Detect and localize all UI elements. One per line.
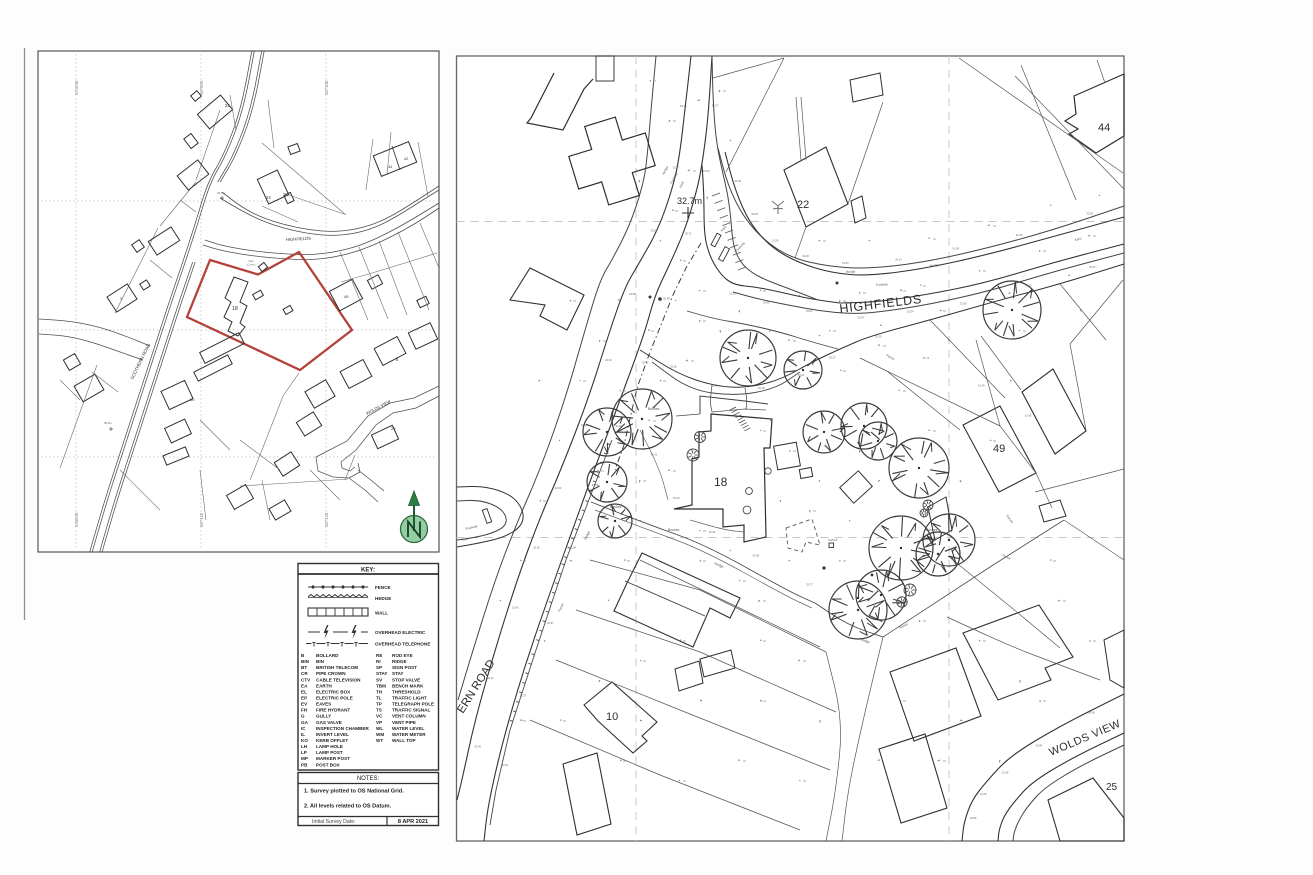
svg-text:32.69: 32.69 <box>703 169 710 173</box>
svg-text:MP: MP <box>301 756 308 761</box>
svg-text:STAY: STAY <box>376 671 388 676</box>
svg-text:FH: FH <box>301 708 308 713</box>
svg-text:32.7m: 32.7m <box>677 196 702 206</box>
svg-text:49: 49 <box>344 294 349 299</box>
svg-text:LAMP POST: LAMP POST <box>316 750 343 755</box>
svg-text:32.83: 32.83 <box>650 229 657 233</box>
svg-text:22: 22 <box>266 195 271 200</box>
svg-text:BIN: BIN <box>316 659 325 664</box>
svg-text:8 APR 2021: 8 APR 2021 <box>398 819 428 825</box>
svg-text:32.35: 32.35 <box>1016 233 1023 237</box>
svg-text:2. All levels related to OS Da: 2. All levels related to OS Datum. <box>304 804 392 810</box>
svg-text:KO: KO <box>301 738 308 743</box>
svg-text:32.14: 32.14 <box>895 257 902 261</box>
svg-text:CR: CR <box>301 671 308 676</box>
svg-text:32.65: 32.65 <box>1087 212 1094 216</box>
svg-text:EP: EP <box>301 696 307 701</box>
svg-text:31.28: 31.28 <box>980 792 987 796</box>
svg-text:T: T <box>340 642 344 649</box>
svg-text:WL: WL <box>376 726 383 731</box>
svg-text:35.4m: 35.4m <box>104 421 112 425</box>
svg-text:KEY:: KEY: <box>361 568 375 574</box>
svg-text:SLP/LP: SLP/LP <box>828 538 838 542</box>
svg-text:33.58: 33.58 <box>629 292 636 296</box>
svg-text:31.99: 31.99 <box>615 424 622 428</box>
svg-text:TP: TP <box>376 702 382 707</box>
svg-text:33.49: 33.49 <box>673 496 680 500</box>
svg-text:RI: RI <box>376 659 381 664</box>
svg-text:EA: EA <box>301 683 308 688</box>
svg-text:LH: LH <box>301 744 308 749</box>
svg-text:FENCE: FENCE <box>375 585 391 590</box>
svg-text:EARTH: EARTH <box>316 683 333 688</box>
svg-text:30.89: 30.89 <box>1036 743 1043 747</box>
svg-text:32.42: 32.42 <box>651 453 658 457</box>
svg-text:T: T <box>326 642 330 649</box>
svg-text:520930: 520930 <box>74 512 79 527</box>
svg-text:32.60: 32.60 <box>555 486 562 490</box>
svg-text:TELEGRAPH POLE: TELEGRAPH POLE <box>392 702 434 707</box>
svg-text:VP: VP <box>376 720 382 725</box>
svg-text:32.42: 32.42 <box>711 383 718 387</box>
svg-text:32.04: 32.04 <box>570 546 577 550</box>
svg-text:32.94: 32.94 <box>605 358 612 362</box>
svg-text:GA: GA <box>301 720 309 725</box>
svg-text:VENT PIPE: VENT PIPE <box>392 720 416 725</box>
svg-text:GULLY: GULLY <box>316 714 331 719</box>
svg-text:33.38: 33.38 <box>752 554 759 558</box>
svg-text:30.58: 30.58 <box>1088 711 1095 715</box>
svg-text:507120: 507120 <box>324 512 329 527</box>
svg-text:G: G <box>301 714 305 719</box>
svg-text:31.72: 31.72 <box>923 356 930 360</box>
svg-text:32.92: 32.92 <box>642 360 649 364</box>
svg-text:33.18: 33.18 <box>758 386 765 390</box>
svg-text:22: 22 <box>797 199 809 211</box>
svg-text:LAMP HOLE: LAMP HOLE <box>316 744 343 749</box>
svg-text:WATER LEVEL: WATER LEVEL <box>392 726 425 731</box>
svg-text:31.43: 31.43 <box>978 384 985 388</box>
svg-text:ROD EYE: ROD EYE <box>392 653 413 658</box>
svg-text:32.37: 32.37 <box>520 694 527 698</box>
svg-text:FIRE HYDRANT: FIRE HYDRANT <box>316 708 350 713</box>
svg-text:RIDGE: RIDGE <box>392 659 407 664</box>
svg-text:31.50: 31.50 <box>772 238 779 242</box>
svg-text:32.07: 32.07 <box>1089 265 1096 269</box>
svg-text:32.22: 32.22 <box>729 292 736 296</box>
svg-text:32.30: 32.30 <box>802 254 809 258</box>
svg-text:32.77: 32.77 <box>806 583 813 587</box>
svg-text:WALL: WALL <box>375 611 388 616</box>
svg-text:32.32: 32.32 <box>709 530 716 534</box>
svg-text:CTV: CTV <box>301 677 311 682</box>
svg-text:32.40: 32.40 <box>474 745 481 749</box>
svg-text:VENT COLUMN: VENT COLUMN <box>392 714 426 719</box>
svg-text:EL: EL <box>301 689 307 694</box>
svg-text:30.86: 30.86 <box>970 816 977 820</box>
svg-text:31.51: 31.51 <box>842 261 849 265</box>
svg-text:Initial Survey Date:: Initial Survey Date: <box>312 819 356 825</box>
svg-text:GAS VALVE: GAS VALVE <box>316 720 342 725</box>
svg-text:10: 10 <box>190 397 195 402</box>
svg-text:33.18: 33.18 <box>670 364 677 368</box>
svg-text:31.99: 31.99 <box>952 247 959 251</box>
svg-text:WALL TOP: WALL TOP <box>392 738 416 743</box>
svg-text:1. Survey plotted to OS Nation: 1. Survey plotted to OS National Grid. <box>304 789 404 795</box>
svg-text:WM: WM <box>376 732 384 737</box>
svg-text:WATER METER: WATER METER <box>392 732 426 737</box>
svg-text:ELECTRIC BOX: ELECTRIC BOX <box>316 689 351 694</box>
svg-text:33.09: 33.09 <box>592 483 599 487</box>
svg-text:32.66: 32.66 <box>512 606 519 610</box>
svg-text:TS: TS <box>376 708 382 713</box>
svg-text:PB: PB <box>301 762 308 767</box>
svg-text:BENCH MARK: BENCH MARK <box>392 683 424 688</box>
svg-text:ELECTRIC POLE: ELECTRIC POLE <box>316 696 353 701</box>
svg-text:44: 44 <box>1098 122 1110 134</box>
svg-text:33.05: 33.05 <box>751 212 758 216</box>
svg-text:Hedge: Hedge <box>846 269 856 274</box>
svg-text:TH: TH <box>376 689 383 694</box>
svg-text:32.45: 32.45 <box>663 296 670 300</box>
svg-text:507100: 507100 <box>324 80 329 95</box>
svg-text:CABLE TELEVISION: CABLE TELEVISION <box>316 677 361 682</box>
svg-text:507090: 507090 <box>199 80 204 95</box>
svg-text:25: 25 <box>391 426 396 431</box>
svg-text:NOTES:: NOTES: <box>357 776 380 782</box>
svg-text:HEDGE: HEDGE <box>375 596 391 601</box>
svg-text:Bushes: Bushes <box>926 528 938 532</box>
svg-text:TL: TL <box>376 696 382 701</box>
svg-text:BT: BT <box>301 665 307 670</box>
svg-text:TRAFFIC LIGHT: TRAFFIC LIGHT <box>392 696 427 701</box>
svg-text:44: 44 <box>388 165 392 169</box>
svg-text:32.87: 32.87 <box>857 316 864 320</box>
svg-text:(Cover): (Cover) <box>247 263 256 267</box>
svg-text:25: 25 <box>1106 782 1118 793</box>
svg-text:42: 42 <box>404 157 408 161</box>
svg-text:IC: IC <box>301 726 306 731</box>
svg-text:33.12: 33.12 <box>680 104 687 108</box>
svg-text:STAY: STAY <box>392 671 404 676</box>
svg-text:TRAFFIC SIGNAL: TRAFFIC SIGNAL <box>392 708 430 713</box>
svg-text:507110: 507110 <box>199 512 204 527</box>
svg-text:32.36: 32.36 <box>581 423 588 427</box>
svg-text:521030: 521030 <box>74 80 79 95</box>
svg-text:THRESHOLD: THRESHOLD <box>392 689 421 694</box>
svg-text:EAVES: EAVES <box>316 702 331 707</box>
svg-text:32.97: 32.97 <box>547 621 554 625</box>
svg-text:KERB OFFLET: KERB OFFLET <box>316 738 348 743</box>
svg-text:Well: Well <box>249 259 254 263</box>
svg-text:BRITISH TELECOM: BRITISH TELECOM <box>316 665 358 670</box>
svg-text:OVERHEAD ELECTRIC: OVERHEAD ELECTRIC <box>375 630 426 635</box>
svg-text:32.71: 32.71 <box>685 232 692 236</box>
svg-text:STOP VALVE: STOP VALVE <box>392 677 420 682</box>
svg-text:Bushes: Bushes <box>648 407 660 411</box>
svg-text:32.61: 32.61 <box>502 763 509 767</box>
svg-text:INSPECTION CHAMBER: INSPECTION CHAMBER <box>316 726 370 731</box>
svg-text:10: 10 <box>606 711 618 723</box>
svg-text:Kerb: Kerb <box>846 301 853 305</box>
svg-text:33.06: 33.06 <box>735 179 742 183</box>
svg-text:TBM: TBM <box>376 683 386 688</box>
svg-text:BOLLARD: BOLLARD <box>316 653 339 658</box>
svg-text:INVERT LEVEL: INVERT LEVEL <box>316 732 349 737</box>
svg-text:T: T <box>312 642 316 649</box>
svg-text:18: 18 <box>714 475 728 489</box>
svg-text:32.56: 32.56 <box>533 546 540 550</box>
svg-text:32.07: 32.07 <box>712 104 719 108</box>
svg-text:IL: IL <box>301 732 305 737</box>
svg-text:32.95: 32.95 <box>1025 413 1032 417</box>
svg-text:32.54: 32.54 <box>907 310 914 314</box>
svg-text:LP: LP <box>301 750 307 755</box>
svg-text:WT: WT <box>376 738 383 743</box>
svg-text:SIGN POST: SIGN POST <box>392 665 417 670</box>
svg-text:33.23: 33.23 <box>829 356 836 360</box>
svg-text:BIN: BIN <box>301 659 310 664</box>
svg-text:33.47: 33.47 <box>673 165 680 169</box>
svg-text:Bushes: Bushes <box>668 528 680 532</box>
svg-text:Bushes: Bushes <box>610 505 622 509</box>
svg-text:33.04: 33.04 <box>806 309 813 313</box>
svg-text:OVERHEAD TELEPHONE: OVERHEAD TELEPHONE <box>375 642 430 647</box>
svg-text:18: 18 <box>232 306 238 312</box>
svg-text:EV: EV <box>301 702 308 707</box>
svg-text:PIPE CROWN: PIPE CROWN <box>316 671 346 676</box>
svg-text:31.09: 31.09 <box>1002 771 1009 775</box>
svg-text:32.86: 32.86 <box>763 301 770 305</box>
svg-text:49: 49 <box>993 443 1005 455</box>
svg-text:SP: SP <box>376 665 382 670</box>
svg-text:VC: VC <box>376 714 383 719</box>
svg-text:POST BOX: POST BOX <box>316 762 341 767</box>
svg-text:24: 24 <box>225 103 230 108</box>
svg-text:32.7m: 32.7m <box>217 191 225 195</box>
svg-text:SV: SV <box>376 677 383 682</box>
svg-text:32.15: 32.15 <box>875 334 882 338</box>
svg-text:RE: RE <box>376 653 382 658</box>
svg-text:33.13: 33.13 <box>1025 283 1032 287</box>
svg-text:T: T <box>354 642 358 649</box>
svg-text:32.99: 32.99 <box>960 301 967 305</box>
svg-text:32.61: 32.61 <box>798 373 805 377</box>
svg-text:MARKER POST: MARKER POST <box>316 756 350 761</box>
